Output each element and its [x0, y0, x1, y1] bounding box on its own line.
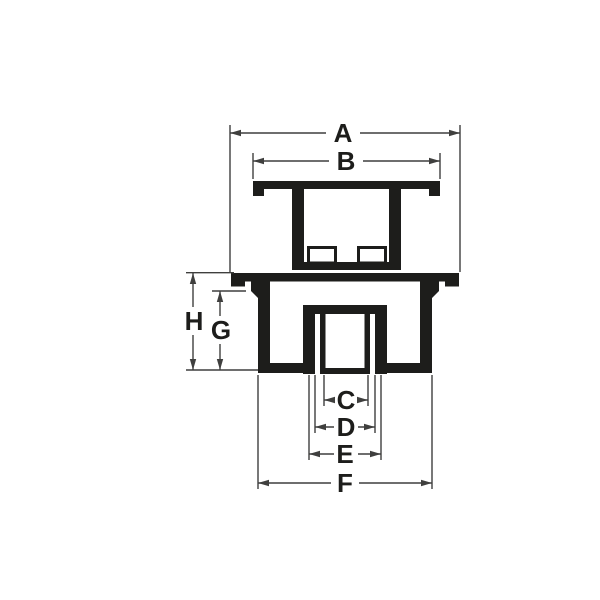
arrowhead-left [253, 158, 264, 164]
strainer-plate-right-tab [429, 188, 440, 196]
dimension-g-label: G [211, 315, 231, 345]
hub-inner-wall-left [320, 313, 326, 369]
arrowhead-left [315, 424, 326, 430]
arrowhead-right [421, 480, 432, 486]
dimension-a: A [230, 118, 460, 272]
drain-body [231, 273, 459, 374]
strainer-castellation-right [359, 248, 386, 264]
bore-bottom [320, 368, 370, 374]
strainer-plate-left-tab [253, 188, 264, 196]
body-left-wall [251, 280, 303, 373]
arrowhead-right [357, 397, 368, 403]
dimension-b-label: B [337, 146, 356, 176]
drain-fitting-diagram: A B C D [0, 0, 600, 600]
dimension-c-label: C [337, 385, 356, 415]
arrowhead-left [324, 397, 335, 403]
hub-inner-wall-right [365, 313, 371, 369]
dimension-a-label: A [334, 118, 353, 148]
strainer-cover [253, 181, 440, 270]
dimension-f-label: F [337, 468, 353, 498]
arrowhead-left [309, 451, 320, 457]
dimension-e-label: E [336, 439, 353, 469]
dimension-g: G [209, 291, 246, 370]
hub-top-bar [303, 305, 387, 314]
strainer-right-leg [389, 188, 401, 270]
arrowhead-up [190, 273, 196, 284]
dimension-c: C [324, 375, 368, 415]
arrowhead-right [364, 424, 375, 430]
body-flange-left-end-block [231, 280, 245, 287]
hub-outer-wall-right [375, 313, 387, 374]
arrowhead-right [449, 130, 460, 136]
dimension-b: B [253, 146, 440, 179]
arrowhead-down [217, 359, 223, 370]
hub-outer-wall-left [303, 313, 315, 374]
arrowhead-down [190, 359, 196, 370]
strainer-castellation-left [309, 248, 336, 264]
dimension-h-label: H [185, 306, 204, 336]
arrowhead-up [217, 291, 223, 302]
strainer-left-leg [292, 188, 304, 270]
technical-drawing-page: A B C D [0, 0, 600, 600]
arrowhead-right [429, 158, 440, 164]
body-right-wall [387, 280, 439, 373]
dimension-d-label: D [337, 412, 356, 442]
arrowhead-left [258, 480, 269, 486]
arrowhead-right [370, 451, 381, 457]
strainer-top-plate [253, 181, 440, 189]
arrowhead-left [230, 130, 241, 136]
body-flange-right-end-block [445, 280, 459, 287]
